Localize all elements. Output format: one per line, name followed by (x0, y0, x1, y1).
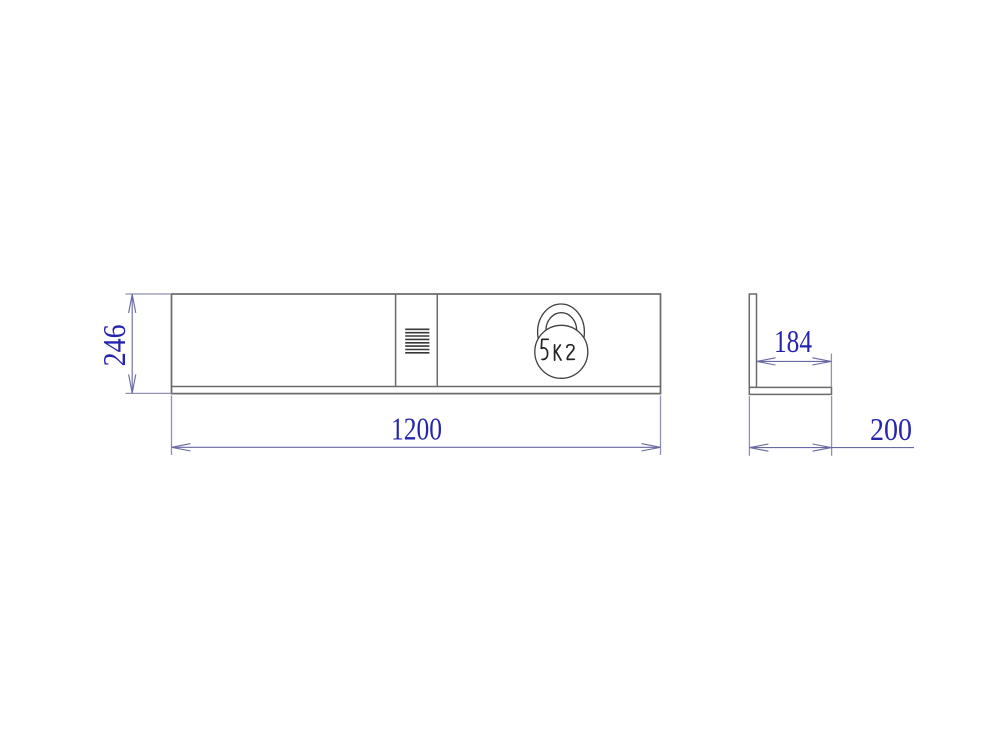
svg-text:184: 184 (774, 324, 812, 359)
svg-text:246: 246 (97, 324, 132, 366)
svg-text:200: 200 (870, 412, 912, 447)
svg-text:1200: 1200 (391, 411, 442, 446)
